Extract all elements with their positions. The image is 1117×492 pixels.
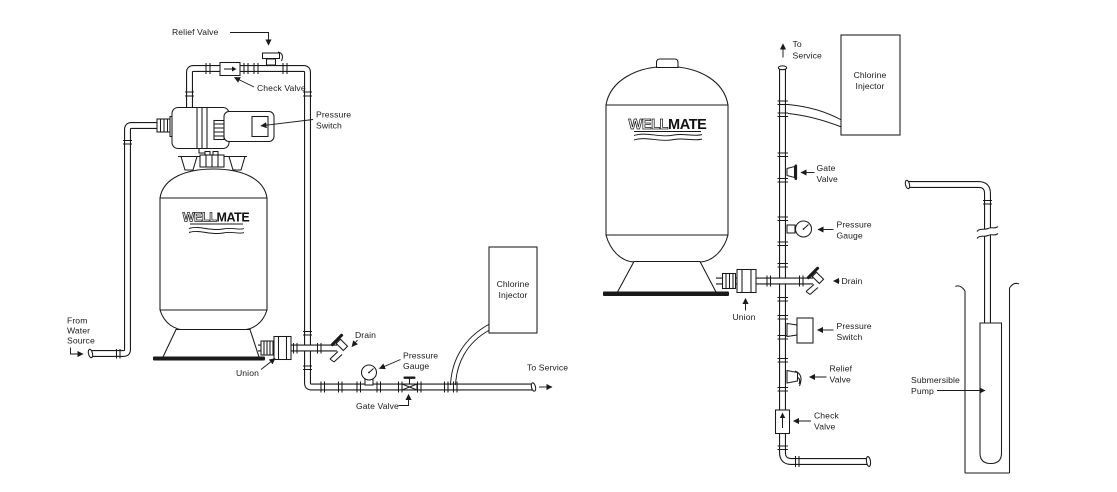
union-fitting: [737, 270, 756, 293]
riser-open-top: [778, 66, 786, 70]
svg-text:Gauge: Gauge: [837, 231, 863, 241]
tank-base-plate: [603, 292, 729, 297]
logo-mate: MATE: [216, 211, 249, 225]
pressure-switch-cover: [252, 117, 268, 137]
svg-text:Service: Service: [793, 51, 822, 61]
svg-text:Valve: Valve: [830, 375, 851, 385]
svg-text:Injector: Injector: [856, 81, 885, 91]
submersible-pump-body: [980, 323, 1002, 464]
gate-valve-label: Gate: [817, 163, 836, 173]
check-valve-symbol: [776, 410, 790, 434]
relief-valve-label: Relief: [830, 364, 853, 374]
union-label: Union: [236, 368, 259, 378]
pressure-switch-label: Pressure: [316, 110, 351, 120]
check-valve-symbol: [220, 63, 240, 76]
wellmate-installation-diagrams: Chlorine Injector WELLMATE Relief Valve …: [0, 0, 1117, 492]
logo-well: WELL: [629, 117, 669, 133]
pressure-gauge-label: Pressure: [403, 351, 438, 361]
svg-text:Water: Water: [67, 326, 90, 336]
tank-base-skirt: [618, 262, 717, 293]
from-water-source-label: From: [67, 316, 87, 326]
svg-text:WELLMATE: WELLMATE: [183, 211, 250, 225]
union-label: Union: [733, 312, 756, 322]
svg-text:Injector: Injector: [499, 290, 528, 300]
drain-label: Drain: [355, 330, 376, 340]
gate-valve-label: Gate Valve: [356, 401, 399, 411]
chlorine-injector-label: Chlorine: [854, 70, 887, 80]
pressure-switch-label: Pressure: [837, 321, 872, 331]
svg-text:Gauge: Gauge: [403, 361, 429, 371]
tank-base-skirt: [163, 330, 259, 358]
tank-body: [160, 169, 267, 330]
svg-text:Valve: Valve: [817, 174, 838, 184]
submersible-pump-label: Submersible: [911, 375, 960, 385]
ridge-block: [214, 121, 224, 140]
check-valve-label: Check: [814, 411, 839, 421]
svg-text:Pump: Pump: [911, 386, 934, 396]
svg-text:Valve: Valve: [814, 422, 835, 432]
logo-well: WELL: [183, 211, 218, 225]
to-service-label: To Service: [527, 363, 568, 373]
svg-text:Switch: Switch: [316, 121, 342, 131]
relief-valve-label: Relief Valve: [172, 27, 219, 37]
tank-body: [606, 67, 728, 263]
union-fitting: [274, 337, 291, 360]
chlorine-injector-label: Chlorine: [497, 279, 530, 289]
logo-mate: MATE: [668, 117, 707, 133]
svg-text:WELLMATE: WELLMATE: [629, 117, 708, 133]
drain-label: Drain: [842, 276, 863, 286]
svg-text:Source: Source: [67, 336, 95, 346]
to-service-label: To: [793, 39, 802, 49]
pressure-gauge-label: Pressure: [837, 220, 872, 230]
svg-text:Switch: Switch: [837, 332, 863, 342]
tank-base-plate: [153, 357, 265, 361]
check-valve-label: Check Valve: [257, 83, 306, 93]
installation-diagram-page: Chlorine Injector WELLMATE Relief Valve …: [0, 0, 1117, 492]
tank-top-cap: [657, 59, 679, 68]
